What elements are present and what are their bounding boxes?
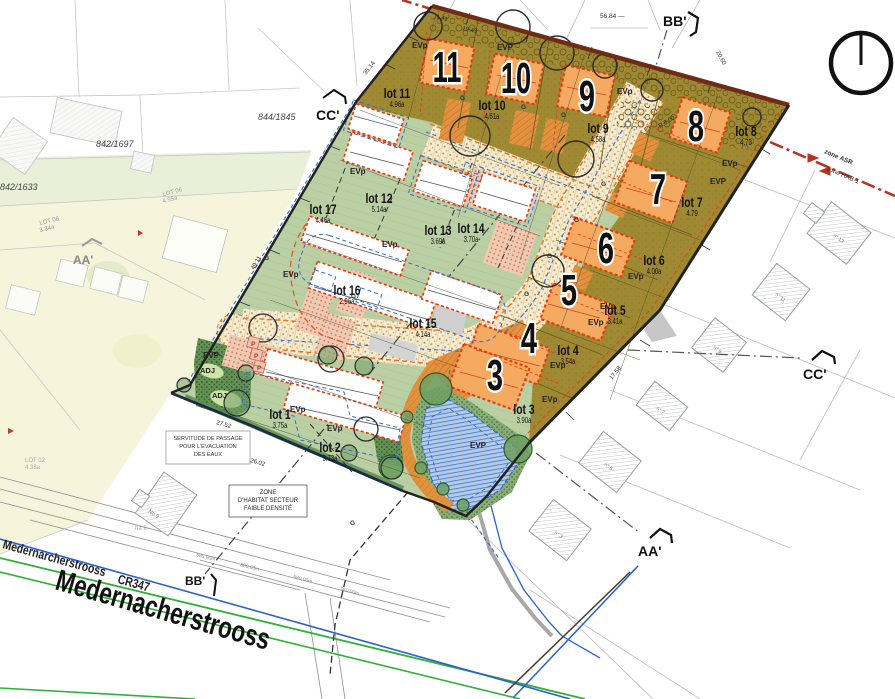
svg-text:ha 9: ha 9 — [135, 526, 147, 532]
svg-text:EVP: EVP — [497, 43, 514, 52]
svg-text:4.79: 4.79 — [686, 210, 698, 218]
svg-text:5.14a: 5.14a — [372, 206, 387, 214]
svg-text:EVp: EVp — [617, 87, 633, 96]
svg-text:G: G — [521, 104, 526, 111]
svg-text:3.69a: 3.69a — [431, 238, 446, 246]
svg-text:LOT 02: LOT 02 — [25, 458, 46, 464]
svg-text:4.58a: 4.58a — [591, 136, 606, 144]
svg-text:7: 7 — [650, 164, 666, 214]
svg-text:lot 2: lot 2 — [319, 439, 340, 455]
svg-text:844/1845: 844/1845 — [258, 112, 297, 122]
svg-text:4.96a: 4.96a — [390, 101, 405, 109]
svg-text:lot 16: lot 16 — [333, 282, 360, 298]
svg-text:EVp: EVp — [327, 424, 343, 433]
svg-text:P: P — [254, 353, 259, 360]
svg-text:G: G — [547, 253, 552, 260]
svg-text:EVP: EVP — [203, 351, 220, 360]
svg-text:CC': CC' — [316, 107, 340, 123]
svg-text:4.61a: 4.61a — [485, 113, 500, 121]
svg-text:lot 8: lot 8 — [735, 123, 756, 139]
svg-text:AA': AA' — [73, 253, 93, 267]
svg-text:ZONE: ZONE — [260, 490, 277, 496]
svg-text:EVP: EVP — [470, 441, 487, 450]
svg-text:EVp: EVp — [588, 318, 604, 327]
svg-text:EVp: EVp — [412, 41, 428, 50]
svg-text:4.46a: 4.46a — [316, 217, 331, 225]
svg-text:EVp: EVp — [542, 395, 558, 404]
svg-text:4: 4 — [521, 313, 537, 363]
svg-text:DES EAUX: DES EAUX — [194, 452, 223, 458]
svg-text:56.84 —: 56.84 — — [600, 13, 625, 20]
svg-text:BB': BB' — [663, 13, 687, 29]
svg-text:P: P — [251, 341, 256, 348]
svg-text:3.73a: 3.73a — [323, 455, 338, 463]
svg-text:G: G — [350, 520, 355, 527]
svg-text:lot 7: lot 7 — [681, 194, 702, 210]
svg-text:G: G — [264, 255, 269, 262]
svg-text:9: 9 — [579, 71, 595, 121]
svg-text:3.90a: 3.90a — [517, 417, 532, 425]
svg-text:AA': AA' — [638, 543, 662, 559]
svg-text:ADJ: ADJ — [200, 366, 215, 375]
svg-text:11: 11 — [433, 42, 462, 91]
svg-text:EVP: EVP — [710, 177, 727, 186]
svg-text:EVp: EVp — [600, 302, 616, 311]
svg-text:3.41a: 3.41a — [608, 318, 623, 326]
svg-text:4.38a: 4.38a — [25, 465, 41, 471]
svg-text:ADJ: ADJ — [212, 391, 227, 400]
svg-text:lot 11: lot 11 — [384, 85, 411, 101]
svg-text:G: G — [351, 293, 356, 300]
svg-text:FAIBLE DENSITÉ: FAIBLE DENSITÉ — [244, 505, 292, 512]
svg-text:4.00a: 4.00a — [647, 268, 662, 276]
svg-text:3.75a: 3.75a — [273, 422, 288, 430]
svg-text:G: G — [601, 181, 606, 188]
svg-text:842/1697: 842/1697 — [96, 139, 135, 149]
svg-text:lot 3: lot 3 — [513, 401, 534, 417]
svg-text:EVp: EVp — [290, 405, 306, 414]
svg-text:8: 8 — [688, 101, 704, 151]
svg-text:4.73: 4.73 — [740, 139, 752, 147]
svg-text:G: G — [561, 112, 566, 119]
svg-text:842/1633: 842/1633 — [0, 182, 38, 192]
svg-text:lot 17: lot 17 — [309, 201, 336, 217]
svg-text:lot 6: lot 6 — [643, 252, 664, 268]
svg-text:P: P — [257, 365, 262, 372]
svg-text:EVp: EVp — [382, 240, 398, 249]
svg-text:G: G — [524, 291, 529, 298]
svg-text:lot 4: lot 4 — [557, 342, 578, 358]
svg-text:EVp: EVp — [628, 272, 644, 281]
svg-text:3: 3 — [487, 350, 503, 400]
svg-text:EVp: EVp — [550, 361, 566, 370]
svg-text:CC': CC' — [803, 366, 827, 382]
svg-text:10: 10 — [501, 53, 531, 102]
svg-text:lot 14: lot 14 — [457, 220, 484, 236]
svg-text:4.14a: 4.14a — [416, 331, 431, 339]
svg-text:G: G — [460, 95, 465, 102]
svg-text:EVp: EVp — [350, 167, 366, 176]
svg-text:lot 1: lot 1 — [269, 406, 290, 422]
svg-text:6: 6 — [598, 223, 614, 273]
svg-text:SERVITUDE DE PASSAGE: SERVITUDE DE PASSAGE — [173, 436, 242, 442]
svg-text:5: 5 — [561, 265, 577, 315]
svg-text:3.70a: 3.70a — [464, 236, 479, 244]
svg-text:lot 12: lot 12 — [365, 190, 392, 206]
svg-text:G: G — [574, 217, 579, 224]
svg-text:POUR L'ÉVACUATION: POUR L'ÉVACUATION — [179, 443, 236, 450]
svg-text:BB': BB' — [185, 574, 205, 588]
svg-text:EVp: EVp — [283, 270, 299, 279]
svg-text:lot 10: lot 10 — [478, 97, 505, 113]
svg-text:D'HABITAT SECTEUR: D'HABITAT SECTEUR — [238, 498, 299, 504]
svg-text:EVp: EVp — [722, 159, 738, 168]
svg-text:lot 13: lot 13 — [424, 222, 451, 238]
svg-text:lot 9: lot 9 — [587, 120, 608, 136]
svg-text:lot 15: lot 15 — [409, 315, 436, 331]
